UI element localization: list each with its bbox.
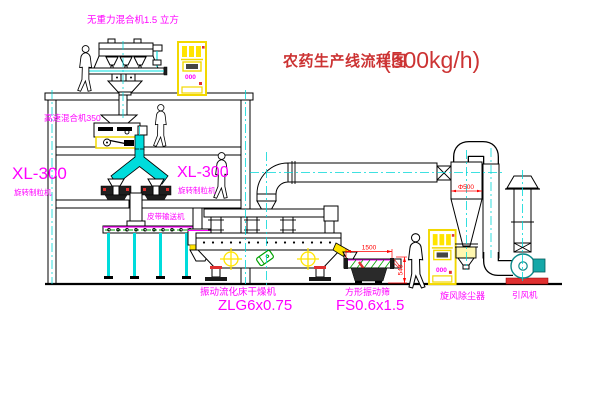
label-granulator-right-name: 旋转制粒机: [178, 185, 216, 195]
label-belt-conveyor: 皮带输送机: [147, 211, 185, 221]
dim-screen-height-text: 540: [398, 264, 405, 275]
label-granulator-right-model: XL-300: [177, 164, 229, 181]
label-fan: 引风机: [512, 290, 538, 300]
cad-drawing-canvas: 1500 540 Φ500 无重力混合机1.5 立方 农药生产线流程图 (500…: [0, 0, 600, 403]
label-high-speed-mixer: 高速混合机350: [44, 113, 101, 123]
fluid-bed-dryer: [196, 206, 352, 281]
drawing-title-capacity: (500kg/h): [383, 47, 480, 73]
dim-screen-length-text: 1500: [362, 245, 377, 252]
rotary-granulator-left: [101, 179, 131, 200]
control-cabinet-top: [178, 42, 206, 95]
label-screen-model: FS0.6x1.5: [336, 297, 404, 314]
label-gravity-mixer: 无重力混合机1.5 立方: [87, 14, 179, 26]
gravity-free-mixer: [85, 39, 167, 95]
label-granulator-left-model: XL-300: [12, 164, 67, 183]
label-screen-name: 方形振动筛: [345, 286, 390, 297]
label-cyclone: 旋风除尘器: [440, 290, 485, 301]
right-panel-display: 000: [436, 267, 447, 274]
exhaust-duct: [257, 161, 437, 210]
dim-cyclone-diameter-text: Φ500: [458, 184, 474, 191]
granulator-discharge-chute: [130, 193, 142, 222]
top-panel-display: 000: [185, 74, 196, 81]
control-cabinet-right: [429, 230, 456, 284]
high-speed-mixer: [94, 115, 147, 150]
chute-outlet: [127, 221, 145, 226]
rotary-granulator-right: [141, 179, 171, 200]
operator-figure-floor2: [154, 105, 167, 147]
label-dryer-model: ZLG6x0.75: [218, 297, 292, 314]
process-flow-drawing: 1500 540 Φ500 无重力混合机1.5 立方 农药生产线流程图 (500…: [0, 0, 600, 403]
label-granulator-left-name: 旋转制粒机: [14, 187, 52, 197]
induced-draft-fan: [506, 254, 548, 284]
operator-figure-screen: [409, 234, 425, 288]
belt-conveyor: [103, 226, 196, 279]
